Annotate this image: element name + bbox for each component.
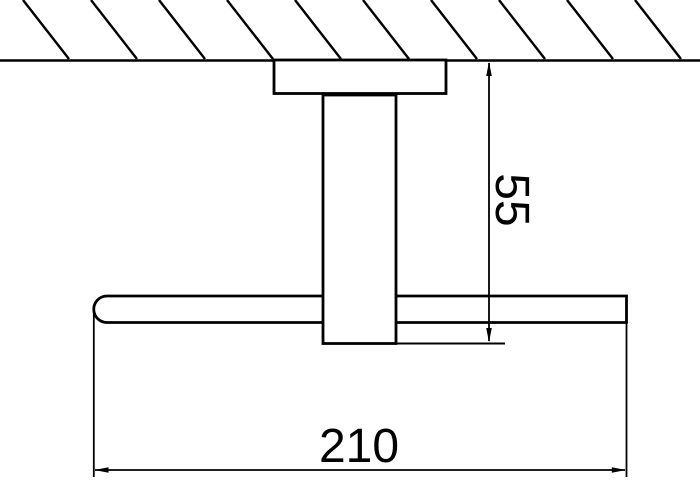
hatch-line: [431, 0, 477, 59]
dimension-label-bar-width: 210: [319, 420, 399, 473]
hatch-line: [295, 0, 341, 59]
arrowhead-down: [486, 328, 492, 342]
dimension-label-stem-length: 55: [485, 173, 538, 226]
hatch-line: [23, 0, 69, 59]
arrowhead-up: [486, 62, 492, 76]
hatch-line: [227, 0, 273, 59]
mounting-post: [323, 95, 396, 344]
mounting-plate: [274, 60, 446, 94]
hatch-line: [499, 0, 545, 59]
hatch-line: [363, 0, 409, 59]
wall-hatching: [23, 0, 681, 59]
hatch-line: [159, 0, 205, 59]
arrowhead-right: [612, 467, 626, 473]
technical-drawing: 55 210: [0, 0, 700, 480]
arrowhead-left: [95, 467, 109, 473]
hatch-line: [91, 0, 137, 59]
technical-drawing-canvas: 55 210: [0, 0, 700, 480]
hatch-line: [635, 0, 681, 59]
hatch-line: [567, 0, 613, 59]
